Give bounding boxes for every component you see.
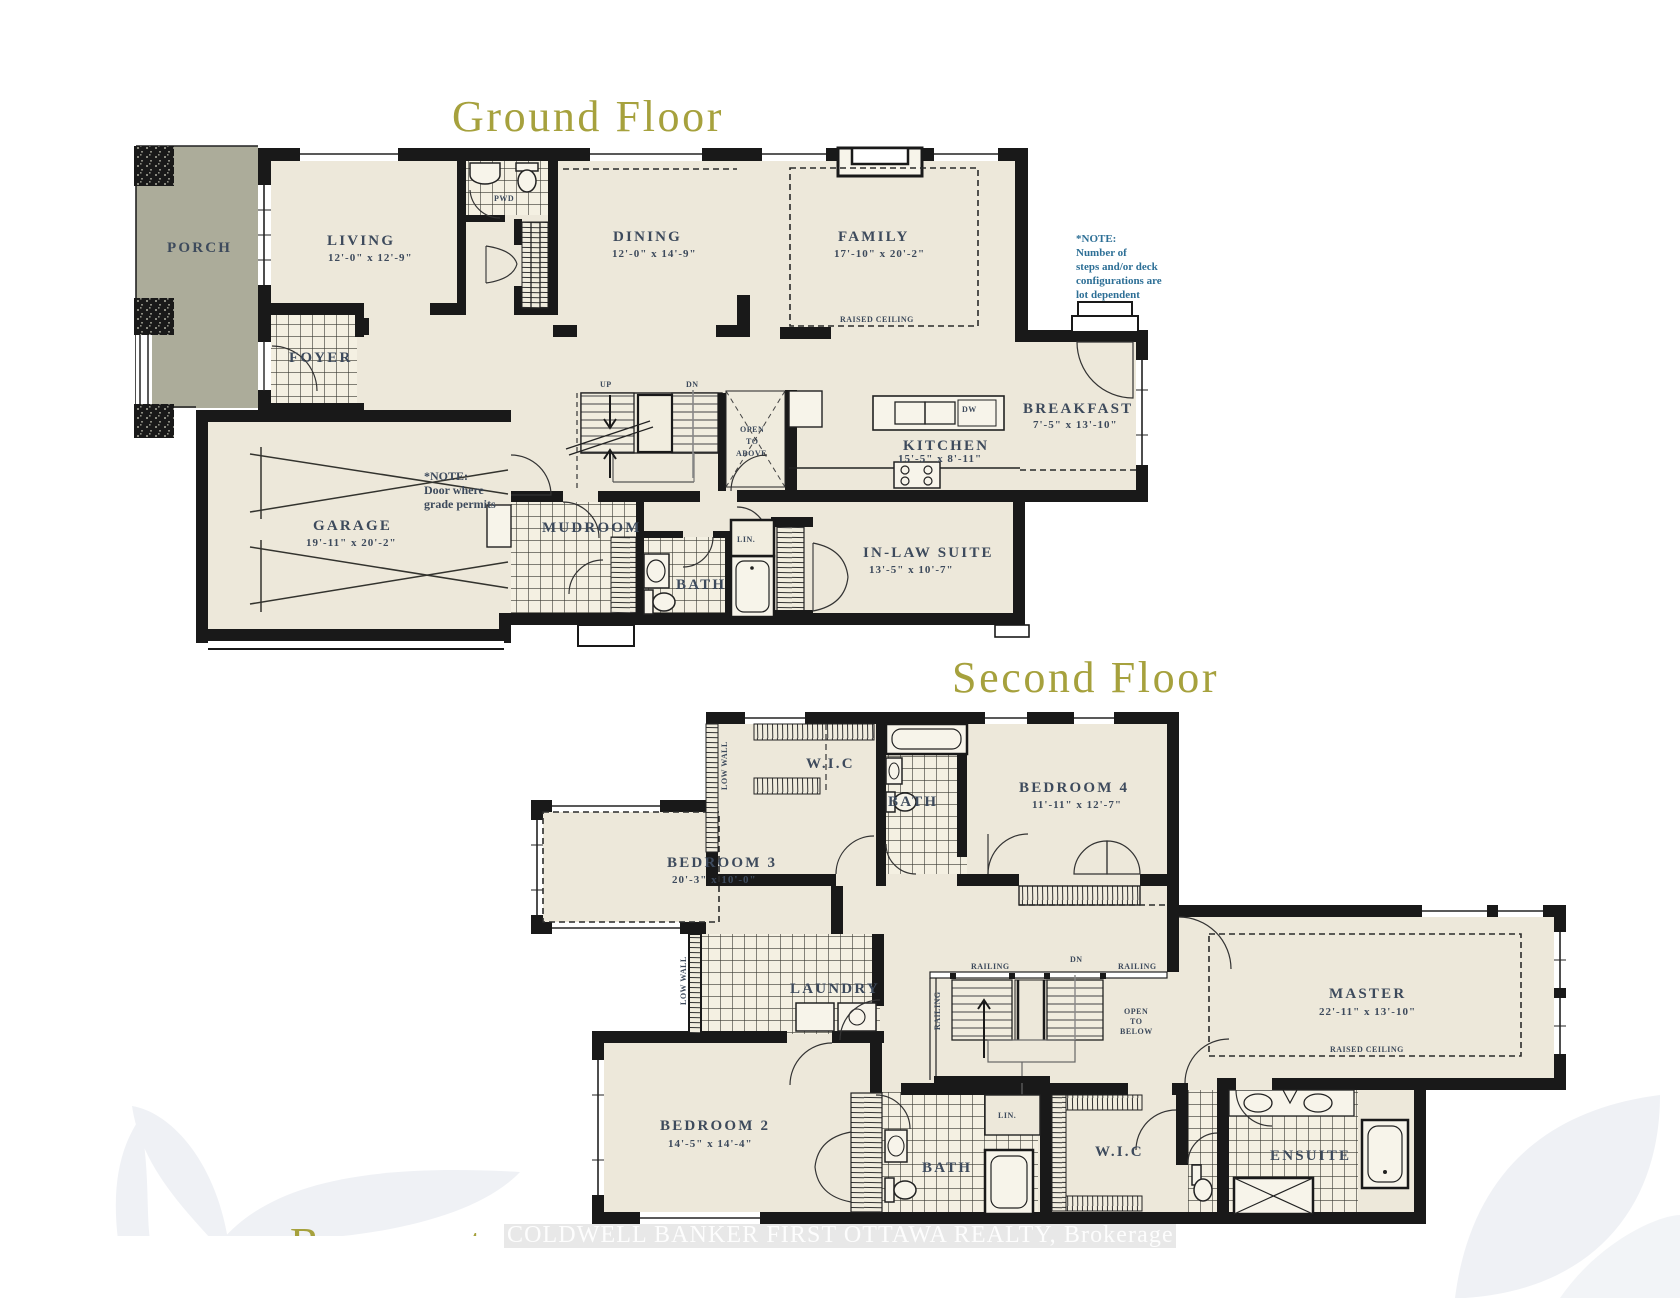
svg-text:ENSUITE: ENSUITE bbox=[1270, 1148, 1351, 1164]
svg-text:LIN.: LIN. bbox=[998, 1111, 1016, 1120]
svg-text:20'-3" x 10'-0": 20'-3" x 10'-0" bbox=[672, 874, 757, 886]
svg-text:15'-5" x 8'-11": 15'-5" x 8'-11" bbox=[898, 453, 982, 465]
svg-text:TO: TO bbox=[1130, 1017, 1142, 1026]
svg-text:ABOVE: ABOVE bbox=[736, 449, 767, 458]
svg-text:14'-5" x 14'-4": 14'-5" x 14'-4" bbox=[668, 1138, 753, 1150]
svg-text:Number of: Number of bbox=[1076, 247, 1127, 259]
svg-text:FAMILY: FAMILY bbox=[838, 229, 910, 245]
svg-text:BATH: BATH bbox=[922, 1160, 972, 1176]
svg-text:RAILING: RAILING bbox=[971, 962, 1010, 971]
svg-text:lot dependent: lot dependent bbox=[1076, 289, 1140, 301]
svg-text:W.I.C: W.I.C bbox=[1095, 1144, 1144, 1160]
svg-text:GARAGE: GARAGE bbox=[313, 518, 392, 534]
svg-text:grade permits: grade permits bbox=[424, 497, 496, 511]
svg-text:Second Floor: Second Floor bbox=[952, 653, 1219, 702]
svg-text:BEDROOM 2: BEDROOM 2 bbox=[660, 1118, 770, 1134]
svg-text:LAUNDRY: LAUNDRY bbox=[790, 981, 880, 997]
svg-text:BATH: BATH bbox=[888, 794, 938, 810]
svg-text:LIVING: LIVING bbox=[327, 233, 395, 249]
svg-text:OPEN: OPEN bbox=[740, 425, 764, 434]
svg-text:RAISED CEILING: RAISED CEILING bbox=[1330, 1045, 1404, 1054]
svg-text:12'-0" x 12'-9": 12'-0" x 12'-9" bbox=[328, 252, 413, 264]
svg-text:BATH: BATH bbox=[676, 577, 726, 593]
svg-text:BELOW: BELOW bbox=[1120, 1027, 1153, 1036]
svg-text:BEDROOM 3: BEDROOM 3 bbox=[667, 855, 777, 871]
svg-text:RAISED CEILING: RAISED CEILING bbox=[840, 315, 914, 324]
svg-text:TO: TO bbox=[746, 437, 758, 446]
svg-text:PORCH: PORCH bbox=[167, 240, 232, 256]
svg-text:W.I.C: W.I.C bbox=[806, 756, 855, 772]
svg-text:*NOTE:: *NOTE: bbox=[424, 469, 468, 483]
svg-text:11'-11" x 12'-7": 11'-11" x 12'-7" bbox=[1032, 799, 1122, 811]
svg-text:BREAKFAST: BREAKFAST bbox=[1023, 401, 1133, 417]
svg-text:17'-10" x 20'-2": 17'-10" x 20'-2" bbox=[834, 248, 925, 260]
svg-text:*NOTE:: *NOTE: bbox=[1076, 233, 1116, 245]
svg-text:OPEN: OPEN bbox=[1124, 1007, 1148, 1016]
svg-text:DW: DW bbox=[962, 405, 977, 414]
svg-text:IN-LAW SUITE: IN-LAW SUITE bbox=[863, 545, 994, 561]
svg-text:LIN.: LIN. bbox=[737, 535, 755, 544]
svg-text:DN: DN bbox=[686, 380, 699, 389]
svg-text:7'-5" x 13'-10": 7'-5" x 13'-10" bbox=[1033, 419, 1118, 431]
svg-text:Door where: Door where bbox=[424, 483, 485, 497]
svg-text:configurations are: configurations are bbox=[1076, 275, 1162, 287]
svg-text:LOW WALL: LOW WALL bbox=[679, 956, 688, 1005]
svg-text:19'-11" x 20'-2": 19'-11" x 20'-2" bbox=[306, 537, 397, 549]
svg-text:RAILING: RAILING bbox=[933, 991, 942, 1030]
svg-text:DN: DN bbox=[1070, 955, 1083, 964]
svg-text:COLDWELL BANKER FIRST OTTAWA R: COLDWELL BANKER FIRST OTTAWA REALTY, Bro… bbox=[507, 1222, 1174, 1248]
svg-text:UP: UP bbox=[600, 380, 612, 389]
svg-text:DINING: DINING bbox=[613, 229, 682, 245]
svg-text:steps and/or deck: steps and/or deck bbox=[1076, 261, 1159, 273]
svg-text:22'-11" x 13'-10": 22'-11" x 13'-10" bbox=[1319, 1006, 1416, 1018]
svg-text:13'-5" x 10'-7": 13'-5" x 10'-7" bbox=[869, 564, 954, 576]
svg-text:MASTER: MASTER bbox=[1329, 986, 1406, 1002]
svg-text:BEDROOM 4: BEDROOM 4 bbox=[1019, 780, 1129, 796]
svg-text:Ground Floor: Ground Floor bbox=[452, 92, 724, 141]
svg-text:FOYER: FOYER bbox=[289, 350, 353, 366]
svg-text:RAILING: RAILING bbox=[1118, 962, 1157, 971]
svg-text:MUDROOM: MUDROOM bbox=[542, 520, 642, 536]
svg-text:PWD: PWD bbox=[494, 194, 514, 203]
svg-text:12'-0" x 14'-9": 12'-0" x 14'-9" bbox=[612, 248, 697, 260]
svg-text:KITCHEN: KITCHEN bbox=[903, 438, 989, 454]
svg-text:LOW WALL: LOW WALL bbox=[720, 741, 729, 790]
